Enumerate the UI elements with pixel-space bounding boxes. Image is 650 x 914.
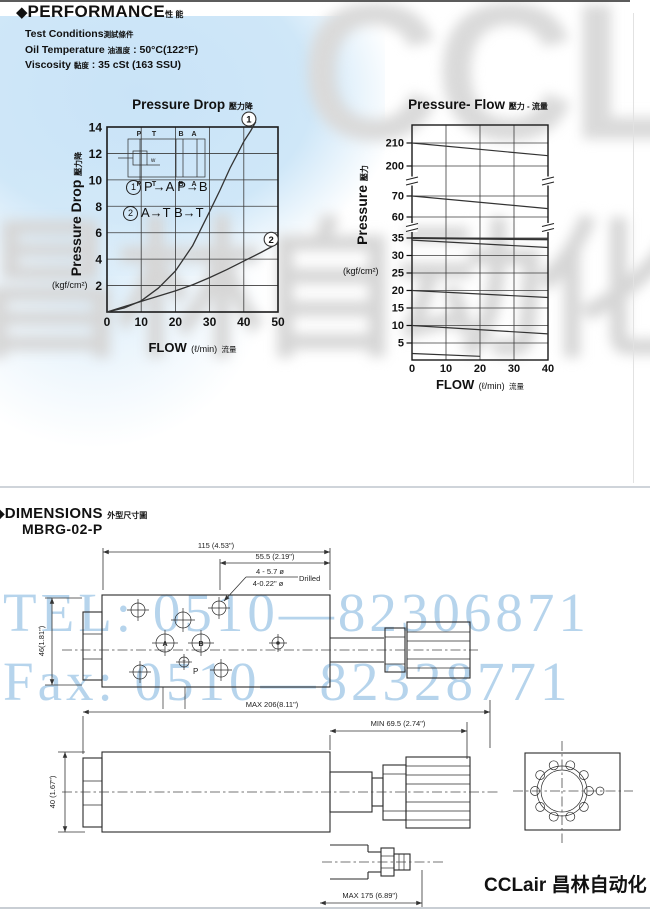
port-label-a: A	[162, 641, 167, 648]
mounting-holes	[127, 597, 232, 683]
dim-drill-note: Drilled	[299, 574, 320, 583]
port-label-t: T	[182, 661, 186, 667]
datasheet-page: CCLair 昌林自动化 TEL: 0510—82306871 Fax: 051…	[0, 0, 650, 914]
dimension-drawings: 115 (4.53") 55.5 (2.19") 4 - 5.7 ø 4-0.2…	[0, 0, 650, 914]
top-view-dimensions	[45, 548, 330, 685]
dim-height-side-view: 40 (1.67")	[48, 775, 57, 808]
side-view-drawing	[58, 700, 500, 832]
dim-min-knob: MIN 69.5 (2.74")	[371, 719, 426, 728]
dim-width-right: 55.5 (2.19")	[256, 552, 295, 561]
dim-max-length: MAX 206(8.11")	[246, 700, 299, 709]
port-holes	[152, 608, 287, 709]
port-label-b: B	[198, 641, 203, 648]
dim-height-top-view: 46(1.81")	[37, 625, 46, 656]
dim-width-overall: 115 (4.53")	[198, 541, 235, 550]
dim-drill-bottom: 4-0.22" ø	[253, 579, 284, 588]
brand-text: CCLair 昌林自动化	[484, 870, 647, 897]
end-view-drawing	[513, 741, 633, 843]
port-label-p: P	[193, 667, 198, 676]
dim-drill-top: 4 - 5.7 ø	[256, 567, 284, 576]
dim-max-length-alt: MAX 175 (6.89")	[342, 891, 398, 900]
